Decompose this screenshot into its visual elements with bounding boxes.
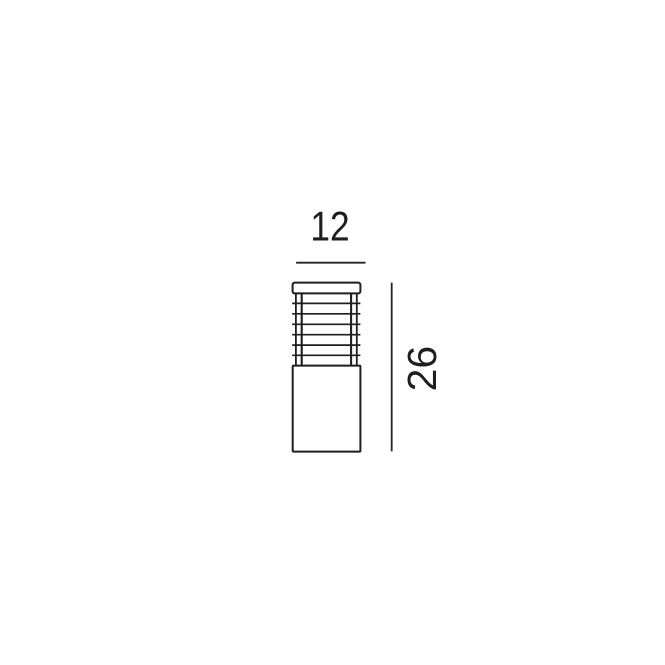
- svg-text:26: 26: [399, 346, 445, 392]
- svg-text:12: 12: [310, 203, 349, 250]
